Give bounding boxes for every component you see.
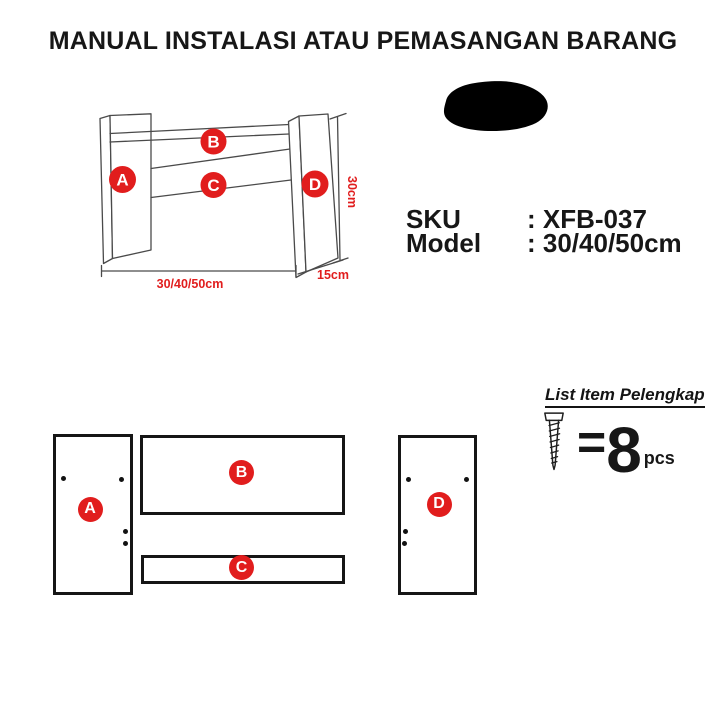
dimension-height-label: 30cm bbox=[345, 176, 359, 208]
flat-part-d-badge: D bbox=[427, 492, 452, 517]
dimension-depth-label: 15cm bbox=[317, 268, 349, 282]
flat-part-c-badge: C bbox=[229, 555, 254, 580]
screw-icon bbox=[543, 410, 565, 473]
screw-hole-dot bbox=[402, 541, 407, 546]
screw-count: 8 bbox=[606, 425, 642, 476]
flat-part-c: C bbox=[141, 555, 345, 584]
manual-page: { "title": "MANUAL INSTALASI ATAU PEMASA… bbox=[0, 0, 726, 726]
model-row: Model : 30/40/50cm bbox=[406, 231, 682, 255]
diagram-badge-c-label: C bbox=[207, 176, 219, 195]
flat-part-b: B bbox=[140, 435, 345, 515]
screw-unit: pcs bbox=[644, 448, 675, 469]
hardware-heading: List Item Pelengkap bbox=[545, 385, 705, 408]
diagram-badge-b-label: B bbox=[207, 133, 219, 152]
screw-hole-dot bbox=[403, 529, 408, 534]
screw-hole-dot bbox=[123, 529, 128, 534]
screw-hole-dot bbox=[119, 477, 124, 482]
screw-hole-dot bbox=[406, 477, 411, 482]
flat-part-a-badge: A bbox=[78, 497, 103, 522]
equals-sign: = bbox=[577, 417, 606, 467]
dimension-width-label: 30/40/50cm bbox=[157, 277, 224, 291]
screw-hole-dot bbox=[464, 477, 469, 482]
flat-part-a: A bbox=[53, 434, 133, 595]
ink-blob-shape bbox=[444, 81, 548, 131]
width-dimension-line bbox=[102, 266, 297, 277]
screw-hole-dot bbox=[123, 541, 128, 546]
diagram-badge-a-label: A bbox=[116, 171, 128, 190]
flat-part-b-badge: B bbox=[229, 460, 254, 485]
model-value: : 30/40/50cm bbox=[527, 228, 682, 259]
diagram-badge-d-label: D bbox=[309, 175, 321, 194]
hardware-row: = 8 pcs bbox=[543, 409, 675, 473]
flat-part-d: D bbox=[398, 435, 477, 595]
product-info: SKU : XFB-037 Model : 30/40/50cm bbox=[406, 207, 682, 255]
screw-hole-dot bbox=[61, 476, 66, 481]
model-label: Model bbox=[406, 228, 527, 259]
assembly-diagram: 30/40/50cm 15cm 30cm A B C D bbox=[0, 0, 726, 726]
